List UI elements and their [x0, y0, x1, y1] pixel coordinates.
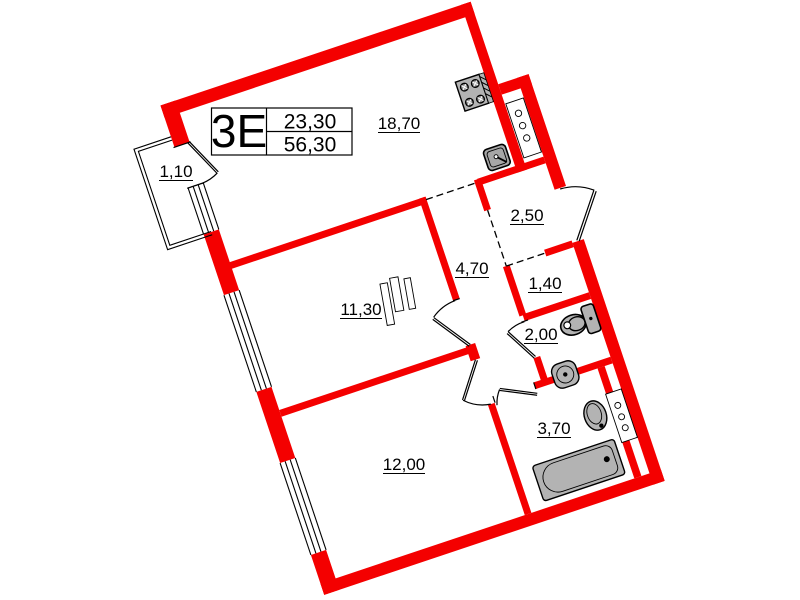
svg-text:23,30: 23,30	[284, 111, 337, 134]
svg-text:12,00: 12,00	[383, 455, 426, 474]
svg-text:2,00: 2,00	[524, 325, 557, 344]
svg-text:11,30: 11,30	[340, 300, 381, 319]
svg-text:1,40: 1,40	[528, 274, 561, 293]
svg-text:3Е: 3Е	[211, 105, 267, 157]
svg-text:18,70: 18,70	[378, 114, 421, 133]
svg-text:2,50: 2,50	[510, 206, 543, 225]
svg-text:56,30: 56,30	[284, 134, 337, 157]
svg-text:4,70: 4,70	[455, 259, 488, 278]
svg-text:3,70: 3,70	[537, 419, 570, 438]
svg-text:1,10: 1,10	[159, 162, 192, 181]
